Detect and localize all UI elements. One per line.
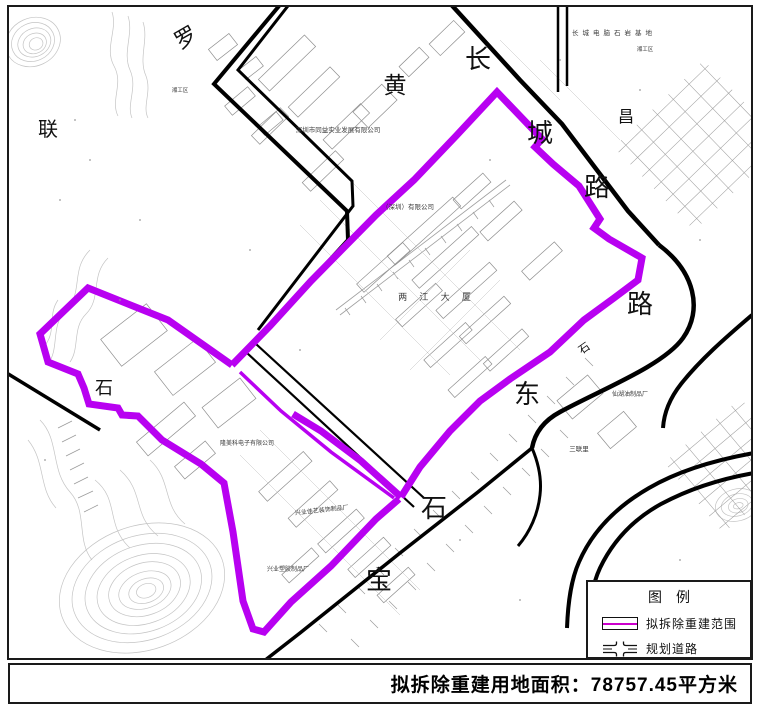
planned-road-symbol: [602, 641, 638, 657]
area-statement-text: 拟拆除重建用地面积：78757.45平方米: [391, 670, 738, 697]
map-label-shi-west: 石: [95, 378, 113, 398]
demolition-boundary-symbol: [602, 617, 638, 630]
village-label: 三联里: [569, 444, 589, 453]
site-label: 长城电脑石岩基地: [572, 28, 656, 37]
map-label-huang: 黄: [384, 73, 407, 98]
building-label: 两 江 大 厦: [398, 291, 476, 302]
legend: 图 例 拟拆除重建范围 规划道路: [586, 580, 752, 659]
map-label-lu-east: 路: [627, 290, 653, 319]
company-label: 深圳市同益实业发展有限公司: [296, 125, 381, 134]
boundary-line-swatch: [603, 623, 637, 625]
factory-label: 兴业塑胶制品厂: [267, 565, 309, 573]
legend-label: 规划道路: [646, 640, 698, 657]
map-label-shi-south: 石: [421, 494, 447, 523]
company-label: 隆美科电子有限公司: [220, 439, 274, 447]
legend-label: 拟拆除重建范围: [646, 615, 737, 632]
zone-label: 湘工区: [172, 86, 189, 94]
map-label-lian: 联: [38, 118, 58, 141]
planning-map-canvas: 罗 联 黄 长 城 路 昌 路 东 石 石 石 宝 深圳市同益实业发展有限公司 …: [0, 0, 760, 715]
map-frame: [8, 6, 752, 659]
zone-label: 湘工区: [637, 45, 654, 53]
map-label-dong: 东: [514, 380, 540, 409]
factory-label: 仙湖油制品厂: [612, 390, 648, 398]
map-label-bao: 宝: [366, 566, 392, 595]
legend-item-planned-road: 规划道路: [602, 640, 750, 657]
map-label-cheng: 城: [527, 119, 553, 148]
map-label-chang: 长: [465, 45, 491, 74]
area-statement-bar: 拟拆除重建用地面积：78757.45平方米: [8, 663, 752, 704]
legend-title: 图 例: [588, 587, 750, 607]
legend-item-demolition-boundary: 拟拆除重建范围: [602, 615, 750, 632]
map-label-chang2: 昌: [618, 109, 634, 126]
map-label-lu-north: 路: [584, 173, 610, 202]
company-label: （深圳）有限公司: [382, 202, 434, 211]
